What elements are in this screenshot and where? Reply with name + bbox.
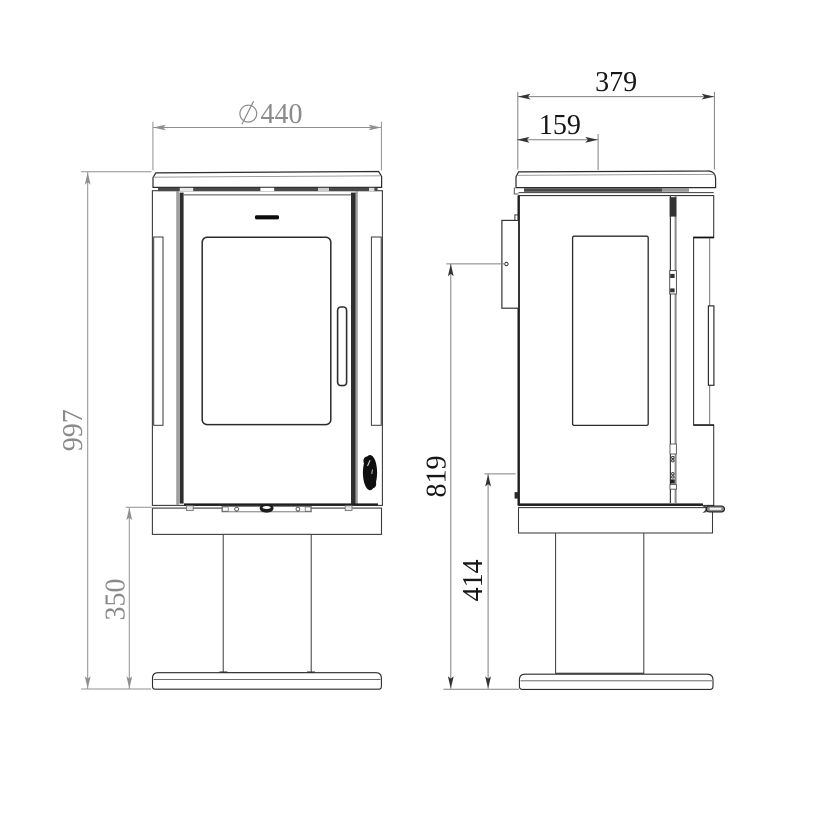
svg-text:350: 350 (101, 579, 132, 621)
svg-text:379: 379 (595, 67, 637, 98)
svg-text:159: 159 (539, 110, 581, 141)
svg-text:819: 819 (422, 456, 453, 498)
svg-text:440: 440 (261, 99, 303, 130)
svg-text:414: 414 (458, 559, 489, 601)
svg-text:997: 997 (58, 409, 89, 451)
